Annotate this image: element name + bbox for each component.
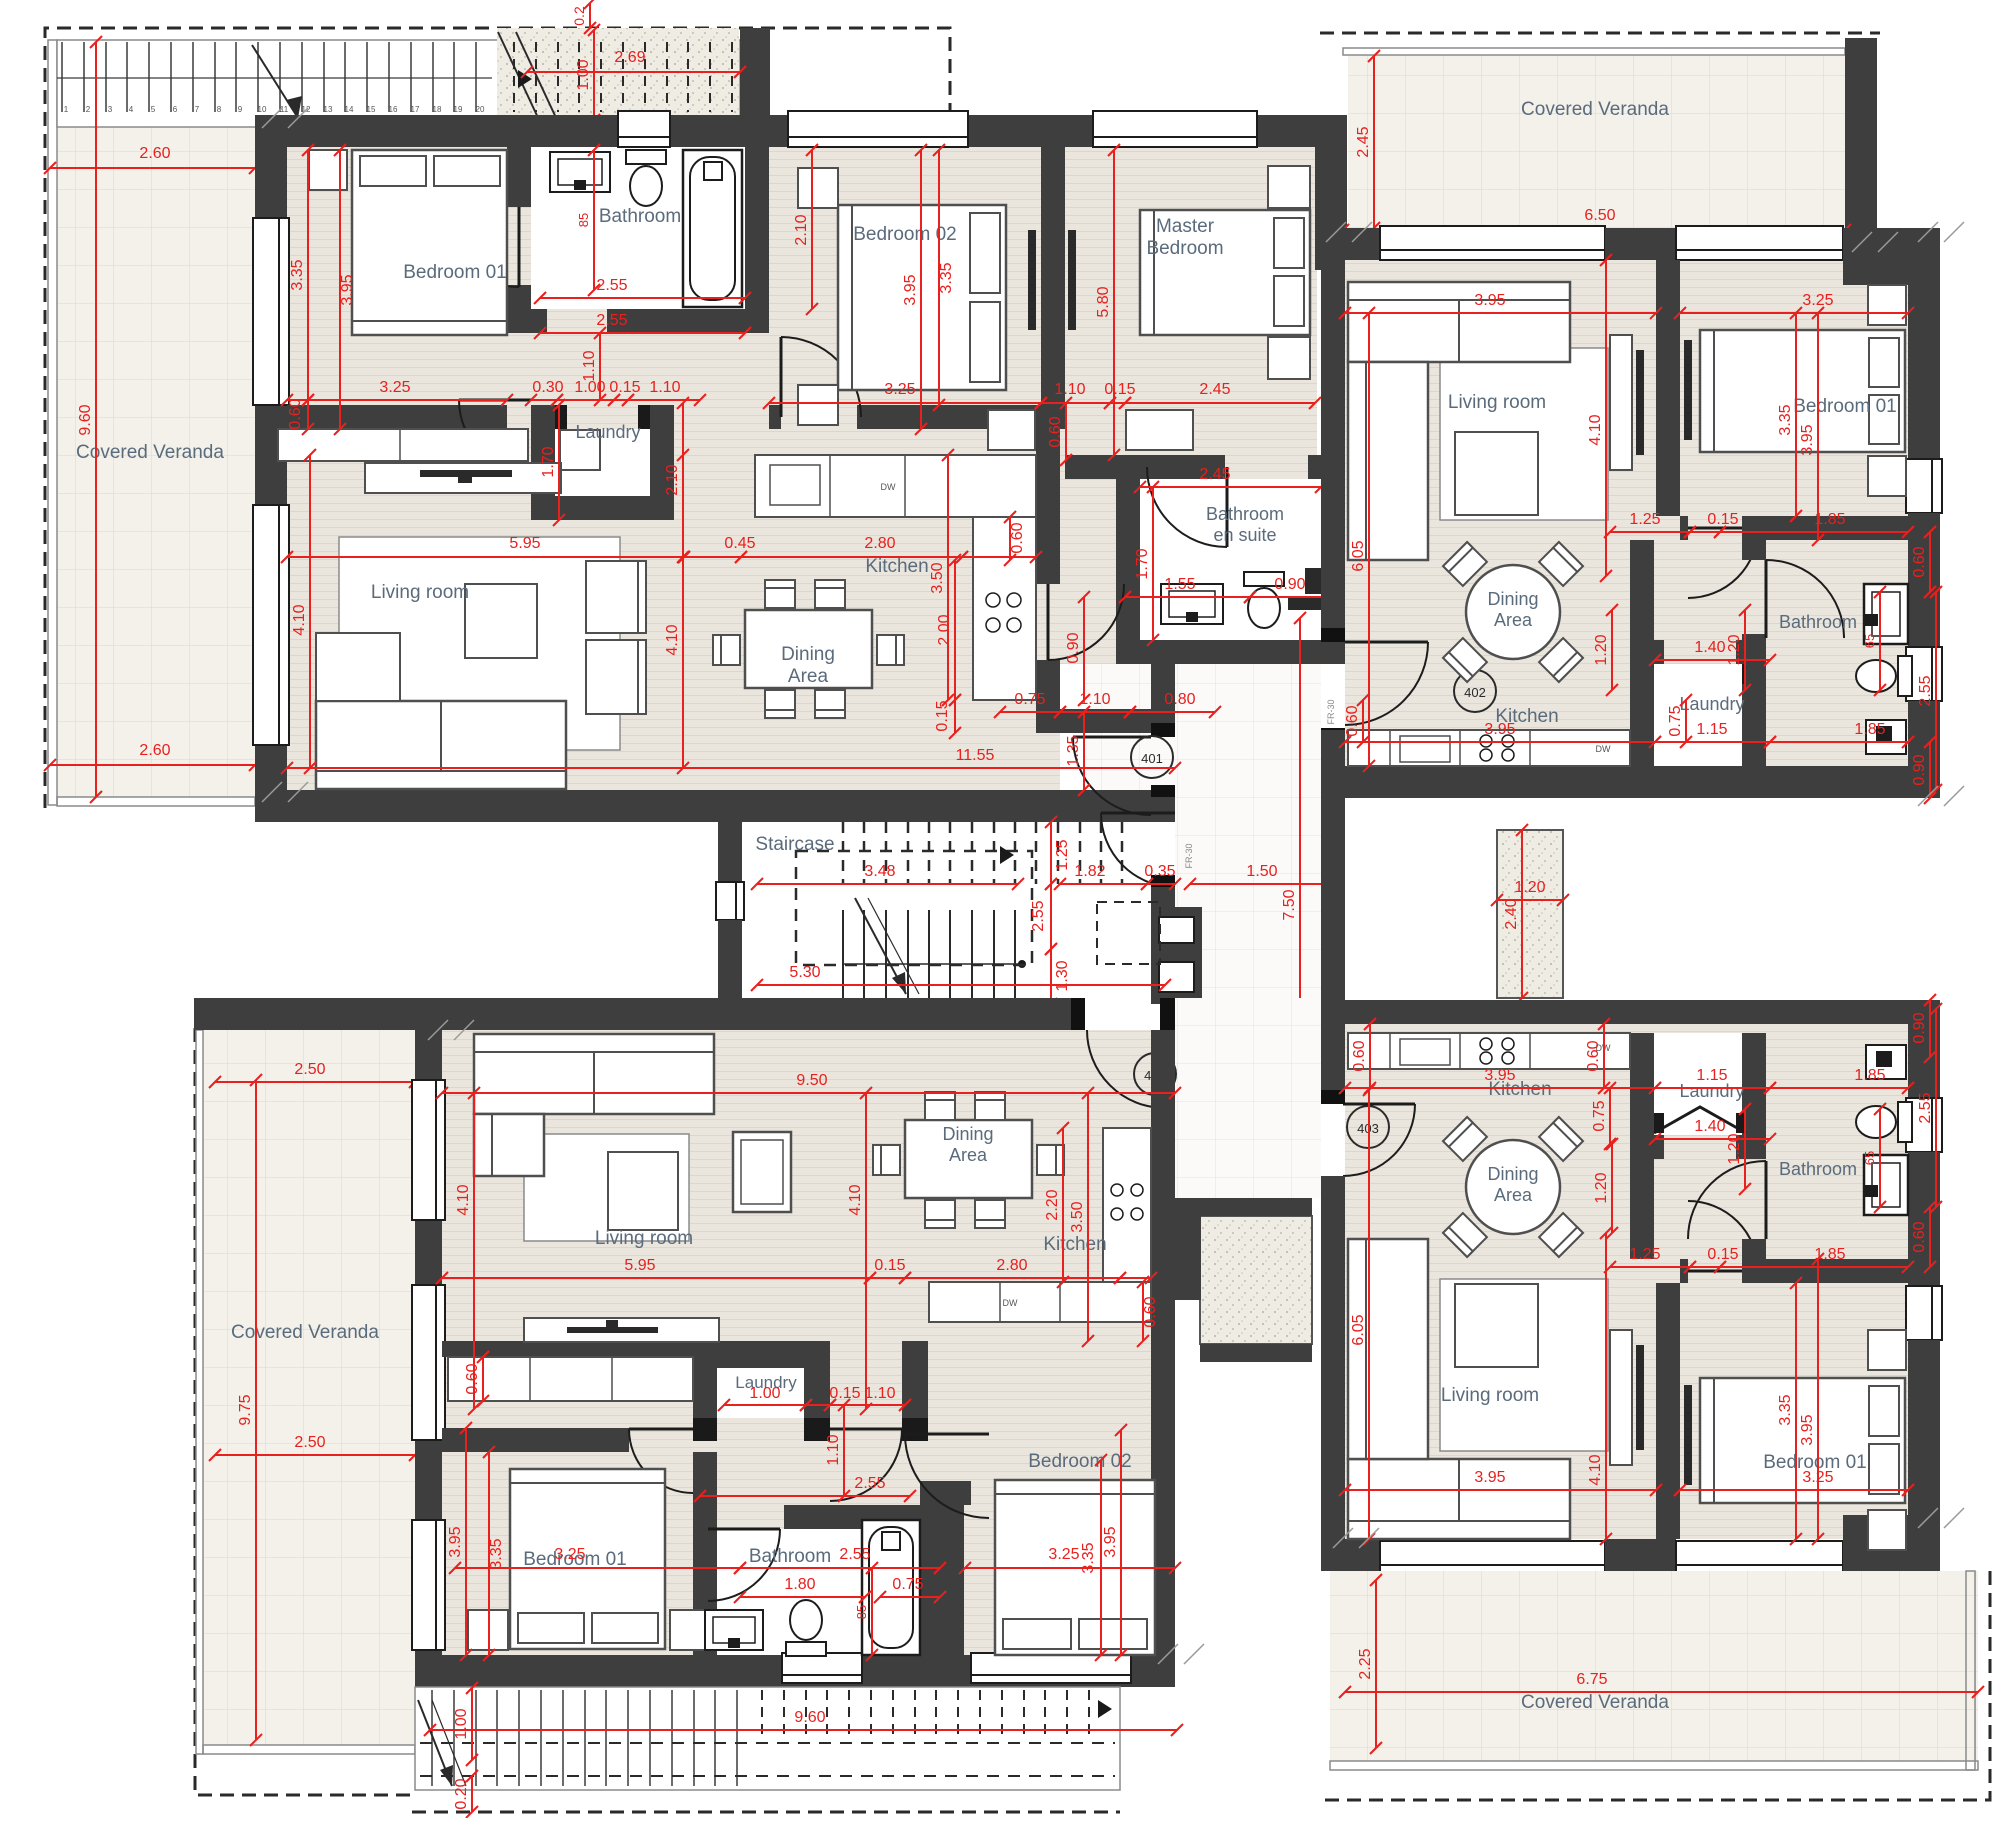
svg-text:9.60: 9.60 <box>77 404 94 435</box>
svg-text:4.10: 4.10 <box>291 604 308 635</box>
svg-text:DW: DW <box>1596 744 1611 754</box>
svg-text:2.60: 2.60 <box>139 742 170 759</box>
svg-text:0.75: 0.75 <box>1667 705 1684 736</box>
svg-text:1.82: 1.82 <box>1074 863 1105 880</box>
svg-text:3.25: 3.25 <box>1048 1546 1079 1563</box>
svg-text:0.60: 0.60 <box>1142 1296 1159 1327</box>
svg-text:401: 401 <box>1141 751 1163 766</box>
svg-text:3.95: 3.95 <box>902 274 919 305</box>
svg-text:1.10: 1.10 <box>581 350 598 381</box>
svg-text:Area: Area <box>949 1145 988 1165</box>
svg-text:3.50: 3.50 <box>929 562 946 593</box>
svg-text:2.10: 2.10 <box>664 464 681 495</box>
svg-text:1.00: 1.00 <box>575 59 592 90</box>
svg-text:Living room: Living room <box>1448 392 1546 413</box>
svg-text:85: 85 <box>854 1605 869 1619</box>
svg-text:1.70: 1.70 <box>1134 548 1151 579</box>
svg-text:3.95: 3.95 <box>1474 1469 1505 1486</box>
svg-text:Area: Area <box>788 666 829 687</box>
svg-text:1.20: 1.20 <box>1726 634 1743 665</box>
svg-text:3.95: 3.95 <box>1799 424 1816 455</box>
svg-text:Living room: Living room <box>1441 1385 1539 1406</box>
svg-text:7.50: 7.50 <box>1281 889 1298 920</box>
svg-text:0.60: 0.60 <box>1009 522 1026 553</box>
svg-text:16: 16 <box>389 105 398 114</box>
svg-text:2.55: 2.55 <box>596 277 627 294</box>
svg-text:Laundry: Laundry <box>1679 1081 1744 1101</box>
svg-text:6: 6 <box>173 105 178 114</box>
svg-text:5.80: 5.80 <box>1095 286 1112 317</box>
svg-text:13: 13 <box>324 105 333 114</box>
svg-text:Bathroom: Bathroom <box>599 206 681 227</box>
svg-text:0.30: 0.30 <box>532 379 563 396</box>
svg-text:17: 17 <box>411 105 420 114</box>
svg-text:0.15: 0.15 <box>874 1257 905 1274</box>
svg-text:2: 2 <box>86 105 91 114</box>
svg-text:Covered Veranda: Covered Veranda <box>1521 99 1669 120</box>
svg-text:0.60: 0.60 <box>1351 1040 1368 1071</box>
svg-text:2.25: 2.25 <box>1357 1648 1374 1679</box>
svg-text:2.45: 2.45 <box>1355 126 1372 157</box>
svg-text:Bedroom: Bedroom <box>1146 238 1223 259</box>
svg-text:Bathroom: Bathroom <box>1206 504 1284 524</box>
svg-text:20: 20 <box>476 105 485 114</box>
svg-text:2.50: 2.50 <box>294 1434 325 1451</box>
svg-text:85: 85 <box>576 213 591 227</box>
svg-text:1.25: 1.25 <box>1629 511 1660 528</box>
svg-text:1.30: 1.30 <box>1054 960 1071 991</box>
svg-text:6.50: 6.50 <box>1584 207 1615 224</box>
svg-text:0.15: 0.15 <box>1707 511 1738 528</box>
svg-text:2.45: 2.45 <box>1199 466 1230 483</box>
svg-text:0.15: 0.15 <box>829 1385 860 1402</box>
svg-text:0.90: 0.90 <box>1911 754 1928 785</box>
svg-text:3.95: 3.95 <box>339 274 356 305</box>
svg-text:Bedroom 02: Bedroom 02 <box>1028 1451 1132 1472</box>
svg-text:0.45: 0.45 <box>724 535 755 552</box>
svg-text:0.20: 0.20 <box>453 1778 470 1809</box>
svg-text:1.35: 1.35 <box>1065 735 1082 766</box>
svg-text:2.55: 2.55 <box>1030 900 1047 931</box>
svg-text:FR-30: FR-30 <box>1326 699 1336 724</box>
svg-text:Living room: Living room <box>371 582 469 603</box>
svg-text:4.10: 4.10 <box>455 1184 472 1215</box>
svg-text:1.10: 1.10 <box>864 1385 895 1402</box>
svg-text:0.75: 0.75 <box>1591 1100 1608 1131</box>
svg-text:Kitchen: Kitchen <box>1043 1234 1106 1255</box>
svg-text:14: 14 <box>345 105 354 114</box>
svg-text:18: 18 <box>433 105 442 114</box>
svg-text:0.60: 0.60 <box>1344 705 1361 736</box>
svg-text:Bathroom: Bathroom <box>1779 612 1857 632</box>
svg-text:1.70: 1.70 <box>540 446 557 477</box>
svg-text:4.10: 4.10 <box>1587 414 1604 445</box>
svg-text:2.10: 2.10 <box>793 214 810 245</box>
svg-text:1.20: 1.20 <box>1514 879 1545 896</box>
svg-text:1.85: 1.85 <box>1854 721 1885 738</box>
svg-text:0.60: 0.60 <box>1585 1040 1602 1071</box>
svg-text:3.95: 3.95 <box>1799 1414 1816 1445</box>
svg-text:7: 7 <box>195 105 200 114</box>
svg-text:3: 3 <box>108 105 113 114</box>
svg-text:3.50: 3.50 <box>1069 1201 1086 1232</box>
svg-text:5.95: 5.95 <box>509 535 540 552</box>
svg-text:3.25: 3.25 <box>1802 1469 1833 1486</box>
svg-text:1.80: 1.80 <box>784 1576 815 1593</box>
svg-text:0.80: 0.80 <box>1164 691 1195 708</box>
svg-text:9: 9 <box>238 105 243 114</box>
svg-text:6.75: 6.75 <box>1576 1671 1607 1688</box>
svg-text:19: 19 <box>454 105 463 114</box>
svg-text:3.95: 3.95 <box>1102 1526 1119 1557</box>
svg-text:Bedroom 01: Bedroom 01 <box>403 262 507 283</box>
svg-text:0.15: 0.15 <box>609 379 640 396</box>
svg-text:3.35: 3.35 <box>1777 1394 1794 1425</box>
svg-text:3.35: 3.35 <box>289 259 306 290</box>
svg-text:2.55: 2.55 <box>1917 1092 1934 1123</box>
svg-text:2.40: 2.40 <box>1503 898 1520 929</box>
svg-text:1.10: 1.10 <box>1079 691 1110 708</box>
svg-text:en suite: en suite <box>1213 525 1276 545</box>
svg-text:1.25: 1.25 <box>1629 1246 1660 1263</box>
svg-text:FR-30: FR-30 <box>1184 843 1194 868</box>
svg-text:Master: Master <box>1156 216 1215 237</box>
svg-text:0.60: 0.60 <box>287 398 304 429</box>
svg-text:0.15: 0.15 <box>1104 381 1135 398</box>
svg-text:1.15: 1.15 <box>1696 721 1727 738</box>
svg-text:1.40: 1.40 <box>1694 1118 1725 1135</box>
svg-text:1.00: 1.00 <box>749 1385 780 1402</box>
svg-text:0.60: 0.60 <box>464 1363 481 1394</box>
svg-text:Covered Veranda: Covered Veranda <box>76 442 224 463</box>
svg-text:6.05: 6.05 <box>1350 540 1367 571</box>
svg-text:Bathroom: Bathroom <box>749 1546 831 1567</box>
svg-text:DW: DW <box>1003 1298 1018 1308</box>
svg-text:5.95: 5.95 <box>624 1257 655 1274</box>
svg-text:Living room: Living room <box>595 1228 693 1249</box>
svg-text:1.10: 1.10 <box>825 1434 842 1465</box>
svg-text:2.00: 2.00 <box>936 614 953 645</box>
svg-text:Bedroom 02: Bedroom 02 <box>853 224 957 245</box>
svg-text:65: 65 <box>1862 634 1877 648</box>
svg-text:1.00: 1.00 <box>453 1708 470 1739</box>
svg-text:Area: Area <box>1494 1185 1533 1205</box>
svg-text:5: 5 <box>151 105 156 114</box>
svg-text:3.95: 3.95 <box>1484 721 1515 738</box>
svg-text:1.15: 1.15 <box>1696 1067 1727 1084</box>
svg-text:3.35: 3.35 <box>1777 404 1794 435</box>
svg-text:1.00: 1.00 <box>574 379 605 396</box>
svg-text:0.90: 0.90 <box>1065 632 1082 663</box>
svg-text:2.60: 2.60 <box>139 145 170 162</box>
svg-text:Dining: Dining <box>1487 1164 1538 1184</box>
svg-text:2.55: 2.55 <box>854 1475 885 1492</box>
svg-text:4.10: 4.10 <box>847 1184 864 1215</box>
svg-text:5.30: 5.30 <box>789 964 820 981</box>
svg-text:0.75: 0.75 <box>892 1576 923 1593</box>
svg-text:Dining: Dining <box>781 644 835 665</box>
svg-text:9.75: 9.75 <box>237 1394 254 1425</box>
svg-text:Area: Area <box>1494 610 1533 630</box>
svg-text:1: 1 <box>64 105 69 114</box>
svg-text:0.35: 0.35 <box>1144 863 1175 880</box>
svg-text:3.25: 3.25 <box>554 1546 585 1563</box>
svg-text:2.45: 2.45 <box>1199 381 1230 398</box>
svg-text:4.10: 4.10 <box>1587 1454 1604 1485</box>
svg-text:2.80: 2.80 <box>864 535 895 552</box>
svg-text:65: 65 <box>1862 1151 1877 1165</box>
svg-text:0.75: 0.75 <box>1014 691 1045 708</box>
svg-text:4.10: 4.10 <box>664 624 681 655</box>
svg-text:Bedroom 01: Bedroom 01 <box>1793 396 1897 417</box>
svg-text:2.80: 2.80 <box>996 1257 1027 1274</box>
svg-text:8: 8 <box>217 105 222 114</box>
svg-text:402: 402 <box>1464 685 1486 700</box>
svg-text:3.95: 3.95 <box>1484 1067 1515 1084</box>
svg-text:9.60: 9.60 <box>794 1709 825 1726</box>
svg-text:4: 4 <box>129 105 134 114</box>
svg-text:3.95: 3.95 <box>1474 292 1505 309</box>
svg-text:0.60: 0.60 <box>1911 546 1928 577</box>
svg-text:1.20: 1.20 <box>1593 634 1610 665</box>
svg-text:1.85: 1.85 <box>1814 511 1845 528</box>
svg-text:0.15: 0.15 <box>934 700 951 731</box>
svg-text:11.55: 11.55 <box>956 747 995 764</box>
svg-text:0.90: 0.90 <box>1274 576 1305 593</box>
svg-text:1.10: 1.10 <box>1054 381 1085 398</box>
svg-text:0.15: 0.15 <box>1707 1246 1738 1263</box>
svg-text:1.25: 1.25 <box>1054 839 1071 870</box>
svg-text:3.35: 3.35 <box>1080 1542 1097 1573</box>
svg-text:Dining: Dining <box>942 1124 993 1144</box>
svg-text:3.35: 3.35 <box>938 262 955 293</box>
svg-text:1.20: 1.20 <box>1726 1133 1743 1164</box>
svg-text:0.60: 0.60 <box>1047 416 1064 447</box>
svg-text:2.50: 2.50 <box>294 1061 325 1078</box>
svg-text:Laundry: Laundry <box>575 422 640 442</box>
svg-text:1.20: 1.20 <box>1593 1172 1610 1203</box>
svg-text:3.48: 3.48 <box>864 863 895 880</box>
svg-text:1.40: 1.40 <box>1694 639 1725 656</box>
svg-text:2.69: 2.69 <box>614 49 645 66</box>
svg-text:3.25: 3.25 <box>1802 292 1833 309</box>
svg-text:3.25: 3.25 <box>884 381 915 398</box>
svg-text:15: 15 <box>367 105 376 114</box>
svg-text:10: 10 <box>258 105 267 114</box>
svg-text:1.85: 1.85 <box>1814 1246 1845 1263</box>
svg-text:3.95: 3.95 <box>447 1526 464 1557</box>
svg-text:3.25: 3.25 <box>379 379 410 396</box>
svg-text:Covered Veranda: Covered Veranda <box>1521 1692 1669 1713</box>
svg-text:Kitchen: Kitchen <box>865 556 928 577</box>
svg-text:Dining: Dining <box>1487 589 1538 609</box>
svg-text:0.90: 0.90 <box>1911 1012 1928 1043</box>
svg-text:3.35: 3.35 <box>488 1538 505 1569</box>
svg-text:0.2: 0.2 <box>571 6 587 26</box>
svg-text:1.85: 1.85 <box>1854 1067 1885 1084</box>
svg-text:1.50: 1.50 <box>1246 863 1277 880</box>
svg-text:2.55: 2.55 <box>839 1546 870 1563</box>
svg-text:1.10: 1.10 <box>649 379 680 396</box>
svg-text:Covered Veranda: Covered Veranda <box>231 1322 379 1343</box>
svg-text:DW: DW <box>881 482 896 492</box>
svg-text:2.55: 2.55 <box>596 312 627 329</box>
svg-text:Bathroom: Bathroom <box>1779 1159 1857 1179</box>
svg-text:6.05: 6.05 <box>1350 1314 1367 1345</box>
svg-text:2.55: 2.55 <box>1917 675 1934 706</box>
svg-text:1.55: 1.55 <box>1164 576 1195 593</box>
svg-text:0.60: 0.60 <box>1911 1221 1928 1252</box>
svg-text:2.20: 2.20 <box>1044 1189 1061 1220</box>
svg-text:9.50: 9.50 <box>796 1072 827 1089</box>
